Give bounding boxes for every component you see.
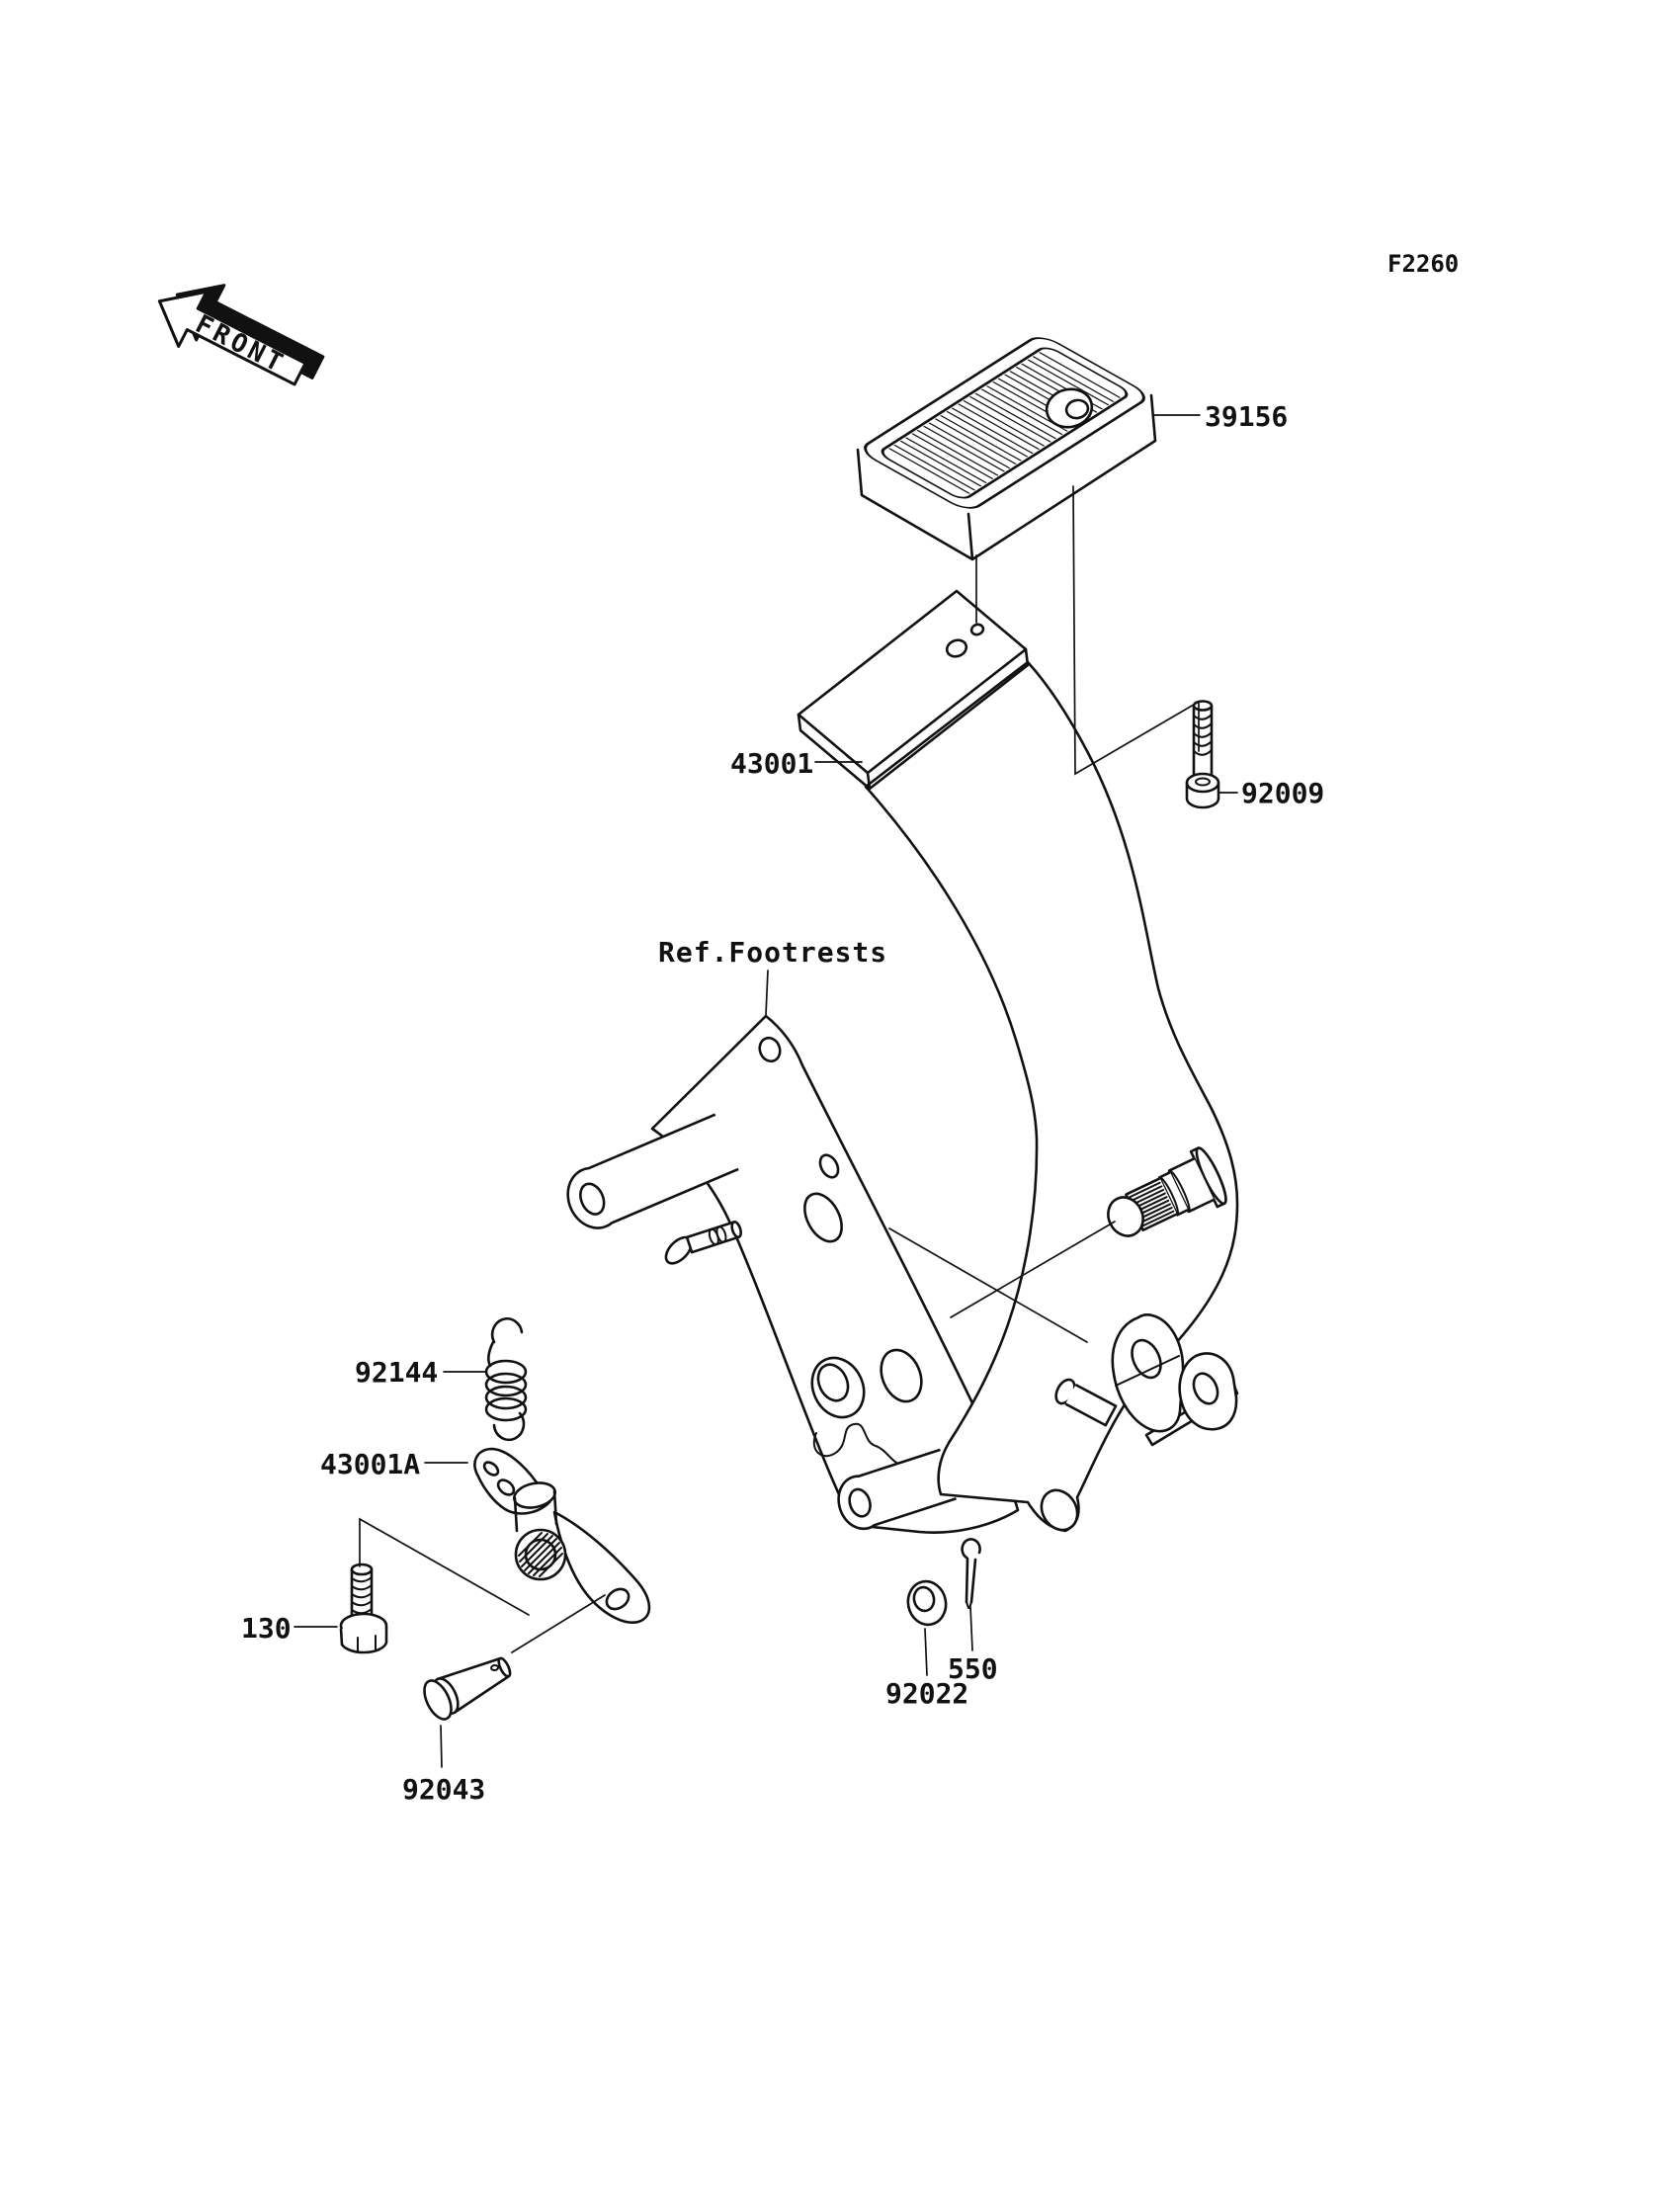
pivot-pin-with-clip — [657, 1216, 746, 1270]
part-label-39156: 39156 — [1205, 400, 1288, 433]
figure-code-text: F2260 — [1387, 250, 1459, 278]
reference-footrests-label: Ref.Footrests — [658, 936, 887, 969]
part-label-550: 550 — [948, 1652, 998, 1685]
part-label-43001A: 43001A — [320, 1448, 420, 1480]
pedal-pad-drawing — [858, 334, 1155, 559]
part-label-92009: 92009 — [1241, 777, 1324, 809]
front-direction-arrow-icon: FRONT — [145, 263, 332, 407]
washer-drawing — [904, 1578, 950, 1629]
part-label-92144: 92144 — [355, 1356, 438, 1389]
brake-lever-drawing — [474, 1449, 649, 1623]
return-spring-drawing — [486, 1318, 526, 1440]
part-label-130: 130 — [241, 1612, 292, 1645]
cotter-pin-drawing — [963, 1539, 980, 1608]
flange-bolt-drawing — [341, 1564, 386, 1652]
clevis-pin-drawing — [419, 1647, 517, 1723]
pad-screw-drawing — [1187, 702, 1218, 808]
parts-catalog-page: FRONT F2260 — [0, 0, 1680, 2197]
brake-pedal-parts-diagram: FRONT F2260 — [0, 0, 1680, 2197]
part-label-43001: 43001 — [730, 747, 813, 780]
part-label-92043: 92043 — [402, 1773, 485, 1806]
